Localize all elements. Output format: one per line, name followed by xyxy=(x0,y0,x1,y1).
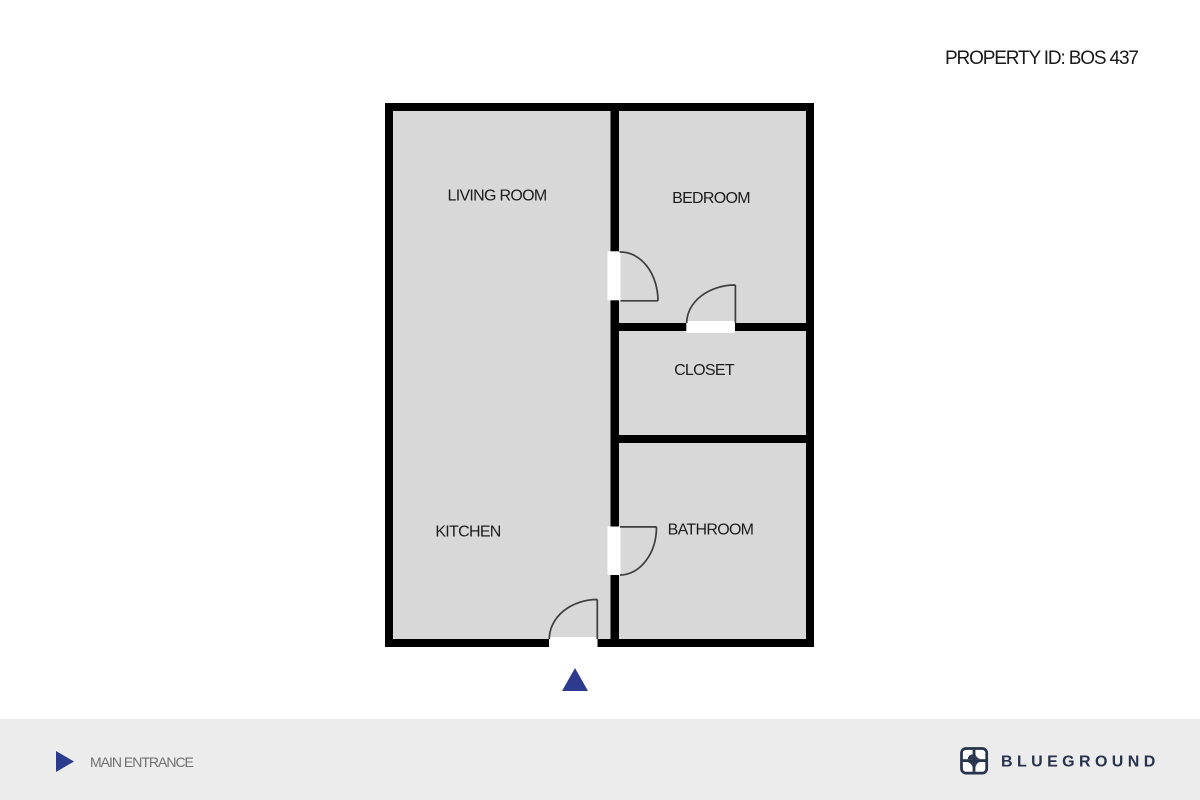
svg-text:CLOSET: CLOSET xyxy=(674,362,735,379)
svg-text:MAIN ENTRANCE: MAIN ENTRANCE xyxy=(90,754,194,770)
svg-text:BATHROOM: BATHROOM xyxy=(668,522,754,539)
svg-text:KITCHEN: KITCHEN xyxy=(435,524,500,541)
svg-text:LIVING ROOM: LIVING ROOM xyxy=(448,188,547,205)
svg-text:BLUEGROUND: BLUEGROUND xyxy=(1001,754,1160,771)
svg-text:BEDROOM: BEDROOM xyxy=(672,190,750,207)
